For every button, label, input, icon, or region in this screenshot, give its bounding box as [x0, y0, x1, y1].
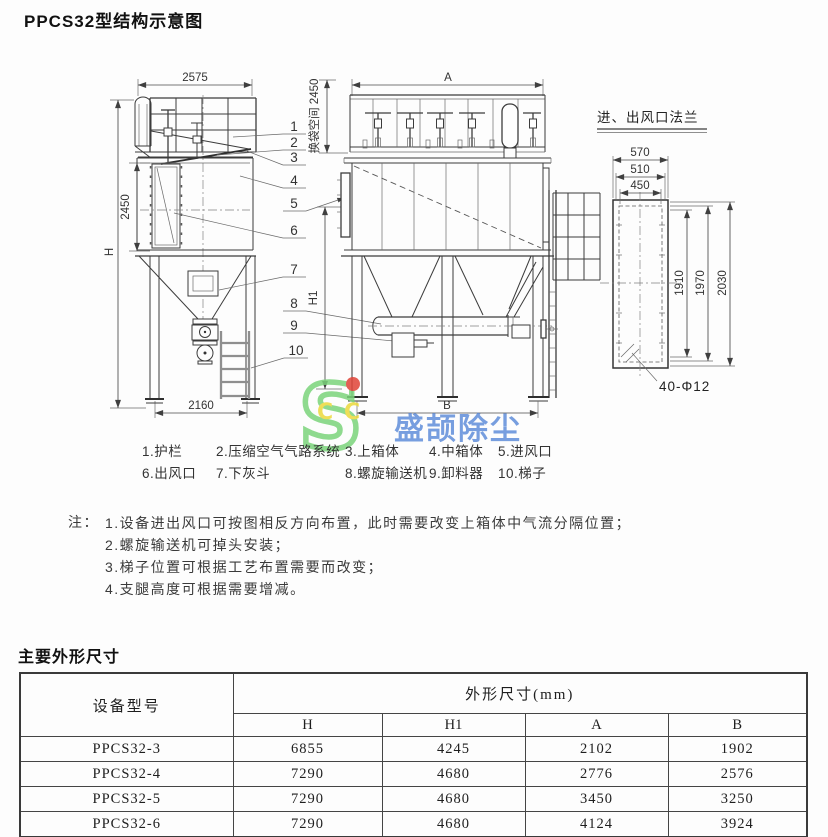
callout-10: 10	[288, 343, 303, 358]
callout-9: 9	[290, 318, 298, 333]
side-platform	[553, 193, 600, 280]
notes-block: 注： 1.设备进出风口可按图相反方向布置，此时需要改变上箱体中气流分隔位置； 2…	[68, 512, 631, 600]
document-page: PPCS32型结构示意图 2575 H 2450 2160	[0, 0, 828, 837]
table-cell: 2576	[668, 762, 807, 787]
note-line: 4.支腿高度可根据需要增减。	[105, 578, 631, 600]
front-view: A	[337, 72, 600, 418]
flange-bolt-note: 40-Φ12	[659, 379, 710, 394]
left-view: 2575 H 2450 2160	[104, 72, 260, 418]
table-cell: 3250	[668, 787, 807, 812]
note-list: 1.设备进出风口可按图相反方向布置，此时需要改变上箱体中气流分隔位置； 2.螺旋…	[105, 512, 631, 600]
table-row: PPCS32-3 6855 4245 2102 1902	[20, 737, 807, 762]
table-cell: 4124	[525, 812, 668, 837]
table-header-A: A	[525, 714, 668, 737]
table-header-row: 设备型号 外形尺寸(mm)	[20, 673, 807, 714]
callout-5: 5	[290, 196, 298, 211]
legend-item: 4.中箱体	[429, 440, 498, 462]
dim-label-bag-space: 换袋空间 2450	[307, 79, 321, 154]
callout-8: 8	[290, 296, 298, 311]
flange-height-1910: 1910	[674, 270, 686, 296]
flange-height-2030: 2030	[717, 270, 729, 296]
table-row: PPCS32-5 7290 4680 3450 3250	[20, 787, 807, 812]
table-cell: 2102	[525, 737, 668, 762]
table-header-H1: H1	[382, 714, 525, 737]
table-row: PPCS32-6 7290 4680 4124 3924	[20, 812, 807, 837]
legend-item: 10.梯子	[498, 462, 552, 484]
legend-item: 2.压缩空气气路系统	[216, 440, 345, 462]
table-header-group: 外形尺寸(mm)	[233, 673, 807, 714]
table-cell: 6855	[233, 737, 382, 762]
table-cell: 4245	[382, 737, 525, 762]
flange-width-510: 510	[630, 164, 649, 176]
callout-6: 6	[290, 223, 298, 238]
table-row: PPCS32-4 7290 4680 2776 2576	[20, 762, 807, 787]
note-line: 3.梯子位置可根据工艺布置需要而改变；	[105, 556, 631, 578]
legend-item: 1.护栏	[142, 440, 216, 462]
note-line: 1.设备进出风口可按图相反方向布置，此时需要改变上箱体中气流分隔位置；	[105, 512, 631, 534]
watermark-c-right: C	[344, 400, 360, 425]
dim-label-total-height: H	[104, 248, 116, 256]
callout-3: 3	[290, 150, 298, 165]
table-cell: 3924	[668, 812, 807, 837]
model-cell: PPCS32-3	[20, 737, 233, 762]
table-cell: 7290	[233, 787, 382, 812]
legend-item: 6.出风口	[142, 462, 216, 484]
table-header-B: B	[668, 714, 807, 737]
table-cell: 2776	[525, 762, 668, 787]
table-cell: 4680	[382, 812, 525, 837]
callout-7: 7	[290, 262, 298, 277]
notes-label: 注：	[68, 512, 99, 600]
watermark-red-dot	[346, 377, 360, 391]
flange-view: 进、出风口法兰 570 510 450 1910 1970	[597, 110, 735, 394]
legend-item: 8.螺旋输送机	[345, 462, 429, 484]
dimensions-table: 设备型号 外形尺寸(mm) H H1 A B PPCS32-3 6855 424…	[19, 672, 808, 837]
flange-width-570: 570	[630, 147, 649, 159]
dim-label-top-width-left: 2575	[182, 72, 208, 84]
legend-item: 9.卸料器	[429, 462, 498, 484]
table-cell: 7290	[233, 762, 382, 787]
callout-1: 1	[290, 119, 298, 134]
callout-2: 2	[290, 135, 298, 150]
table-header-model: 设备型号	[20, 673, 233, 737]
flange-view-title: 进、出风口法兰	[597, 110, 699, 125]
parts-legend: 1.护栏 2.压缩空气气路系统 3.上箱体 4.中箱体 5.进风口 6.出风口 …	[142, 440, 552, 484]
table-cell: 1902	[668, 737, 807, 762]
model-cell: PPCS32-4	[20, 762, 233, 787]
dim-label-base-width-front: B	[443, 400, 451, 412]
flange-width-450: 450	[630, 180, 649, 192]
dim-label-top-width-front: A	[444, 72, 452, 84]
table-header-H: H	[233, 714, 382, 737]
legend-item: 7.下灰斗	[216, 462, 345, 484]
table-cell: 4680	[382, 762, 525, 787]
flange-height-1970: 1970	[695, 270, 707, 296]
dim-label-mid-height-left: 2450	[120, 194, 132, 220]
structure-diagram: 2575 H 2450 2160	[0, 0, 828, 458]
dim-label-inlet-height: H1	[308, 291, 320, 306]
watermark-c-left: C	[317, 400, 333, 425]
section-title: 主要外形尺寸	[18, 643, 120, 667]
table-cell: 7290	[233, 812, 382, 837]
model-cell: PPCS32-6	[20, 812, 233, 837]
dim-label-base-width-left: 2160	[188, 400, 214, 412]
model-cell: PPCS32-5	[20, 787, 233, 812]
table-cell: 3450	[525, 787, 668, 812]
table-cell: 4680	[382, 787, 525, 812]
legend-item: 3.上箱体	[345, 440, 429, 462]
legend-item: 5.进风口	[498, 440, 552, 462]
note-line: 2.螺旋输送机可掉头安装；	[105, 534, 631, 556]
callout-4: 4	[290, 173, 298, 188]
